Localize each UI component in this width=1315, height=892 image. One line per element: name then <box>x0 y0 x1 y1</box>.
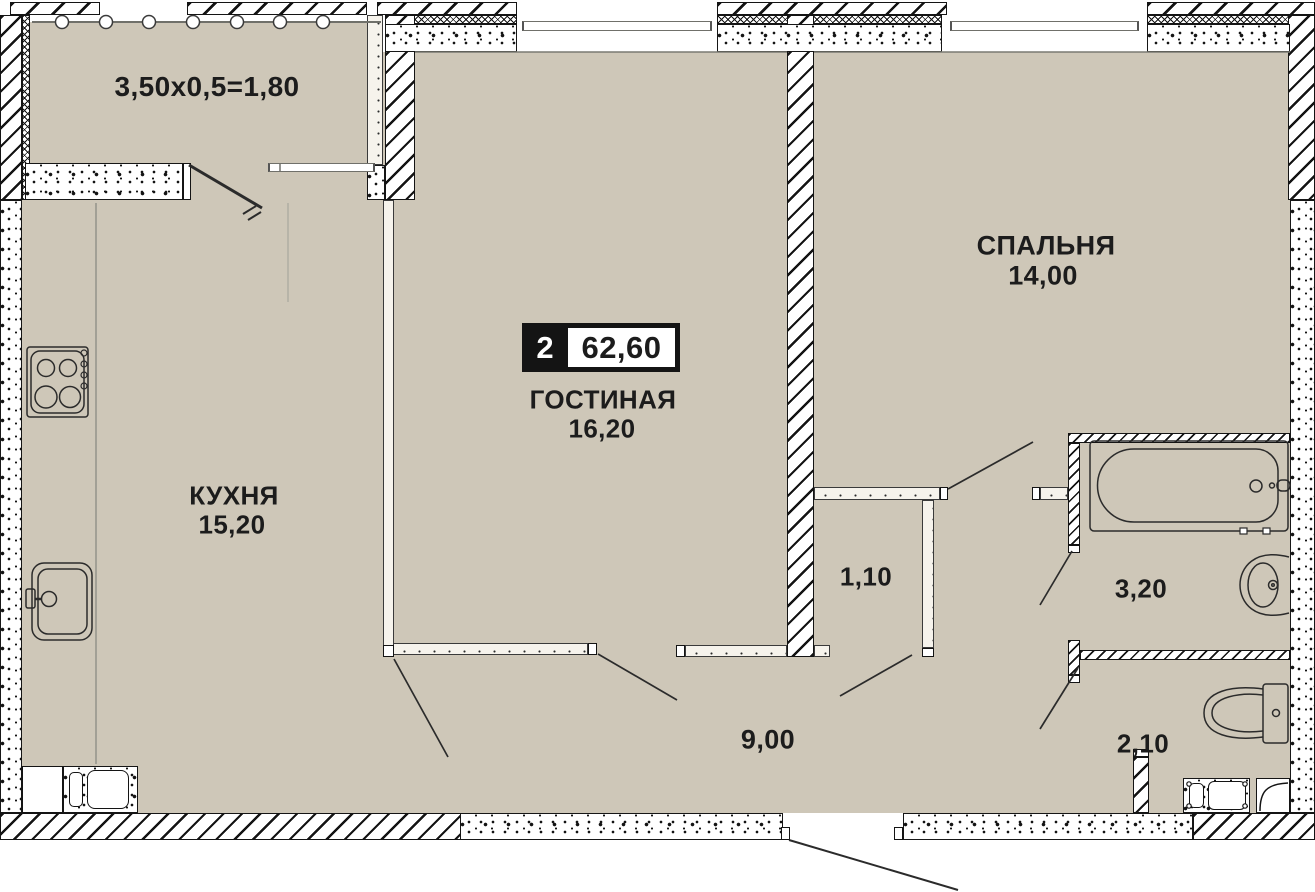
duct-curve <box>1260 783 1288 811</box>
floor-plan: 2 62,60 3,50x0,5=1,80 ГОСТИНАЯ 16,20 СПА… <box>0 0 1315 892</box>
living-room-area: 16,20 <box>568 414 635 445</box>
living-room-name: ГОСТИНАЯ <box>530 385 677 416</box>
apartment-type-badge: 2 62,60 <box>522 323 680 372</box>
bathroom-sink-icon <box>1240 555 1289 615</box>
bathtub-icon <box>1090 441 1290 534</box>
kitchen-area: 15,20 <box>198 510 265 541</box>
bedroom-name: СПАЛЬНЯ <box>977 231 1116 262</box>
stove-icon <box>27 347 88 417</box>
hallway-area: 9,00 <box>741 725 795 756</box>
total-area-badge: 62,60 <box>568 328 675 367</box>
wardrobe-area: 1,10 <box>840 562 892 593</box>
balcony-dimension-label: 3,50x0,5=1,80 <box>114 71 299 103</box>
wc-area: 2,10 <box>1117 729 1169 760</box>
kitchen-sink-icon <box>26 563 92 640</box>
door-swing-line <box>394 442 1078 890</box>
balcony-door-leaf-icon <box>189 165 262 220</box>
bedroom-area: 14,00 <box>1008 261 1078 292</box>
bathroom-area: 3,20 <box>1115 574 1167 605</box>
kitchen-name: КУХНЯ <box>189 481 279 512</box>
vent-screw-icon <box>1187 782 1247 808</box>
toilet-icon <box>1204 684 1288 743</box>
rooms-count-badge: 2 <box>522 323 568 372</box>
